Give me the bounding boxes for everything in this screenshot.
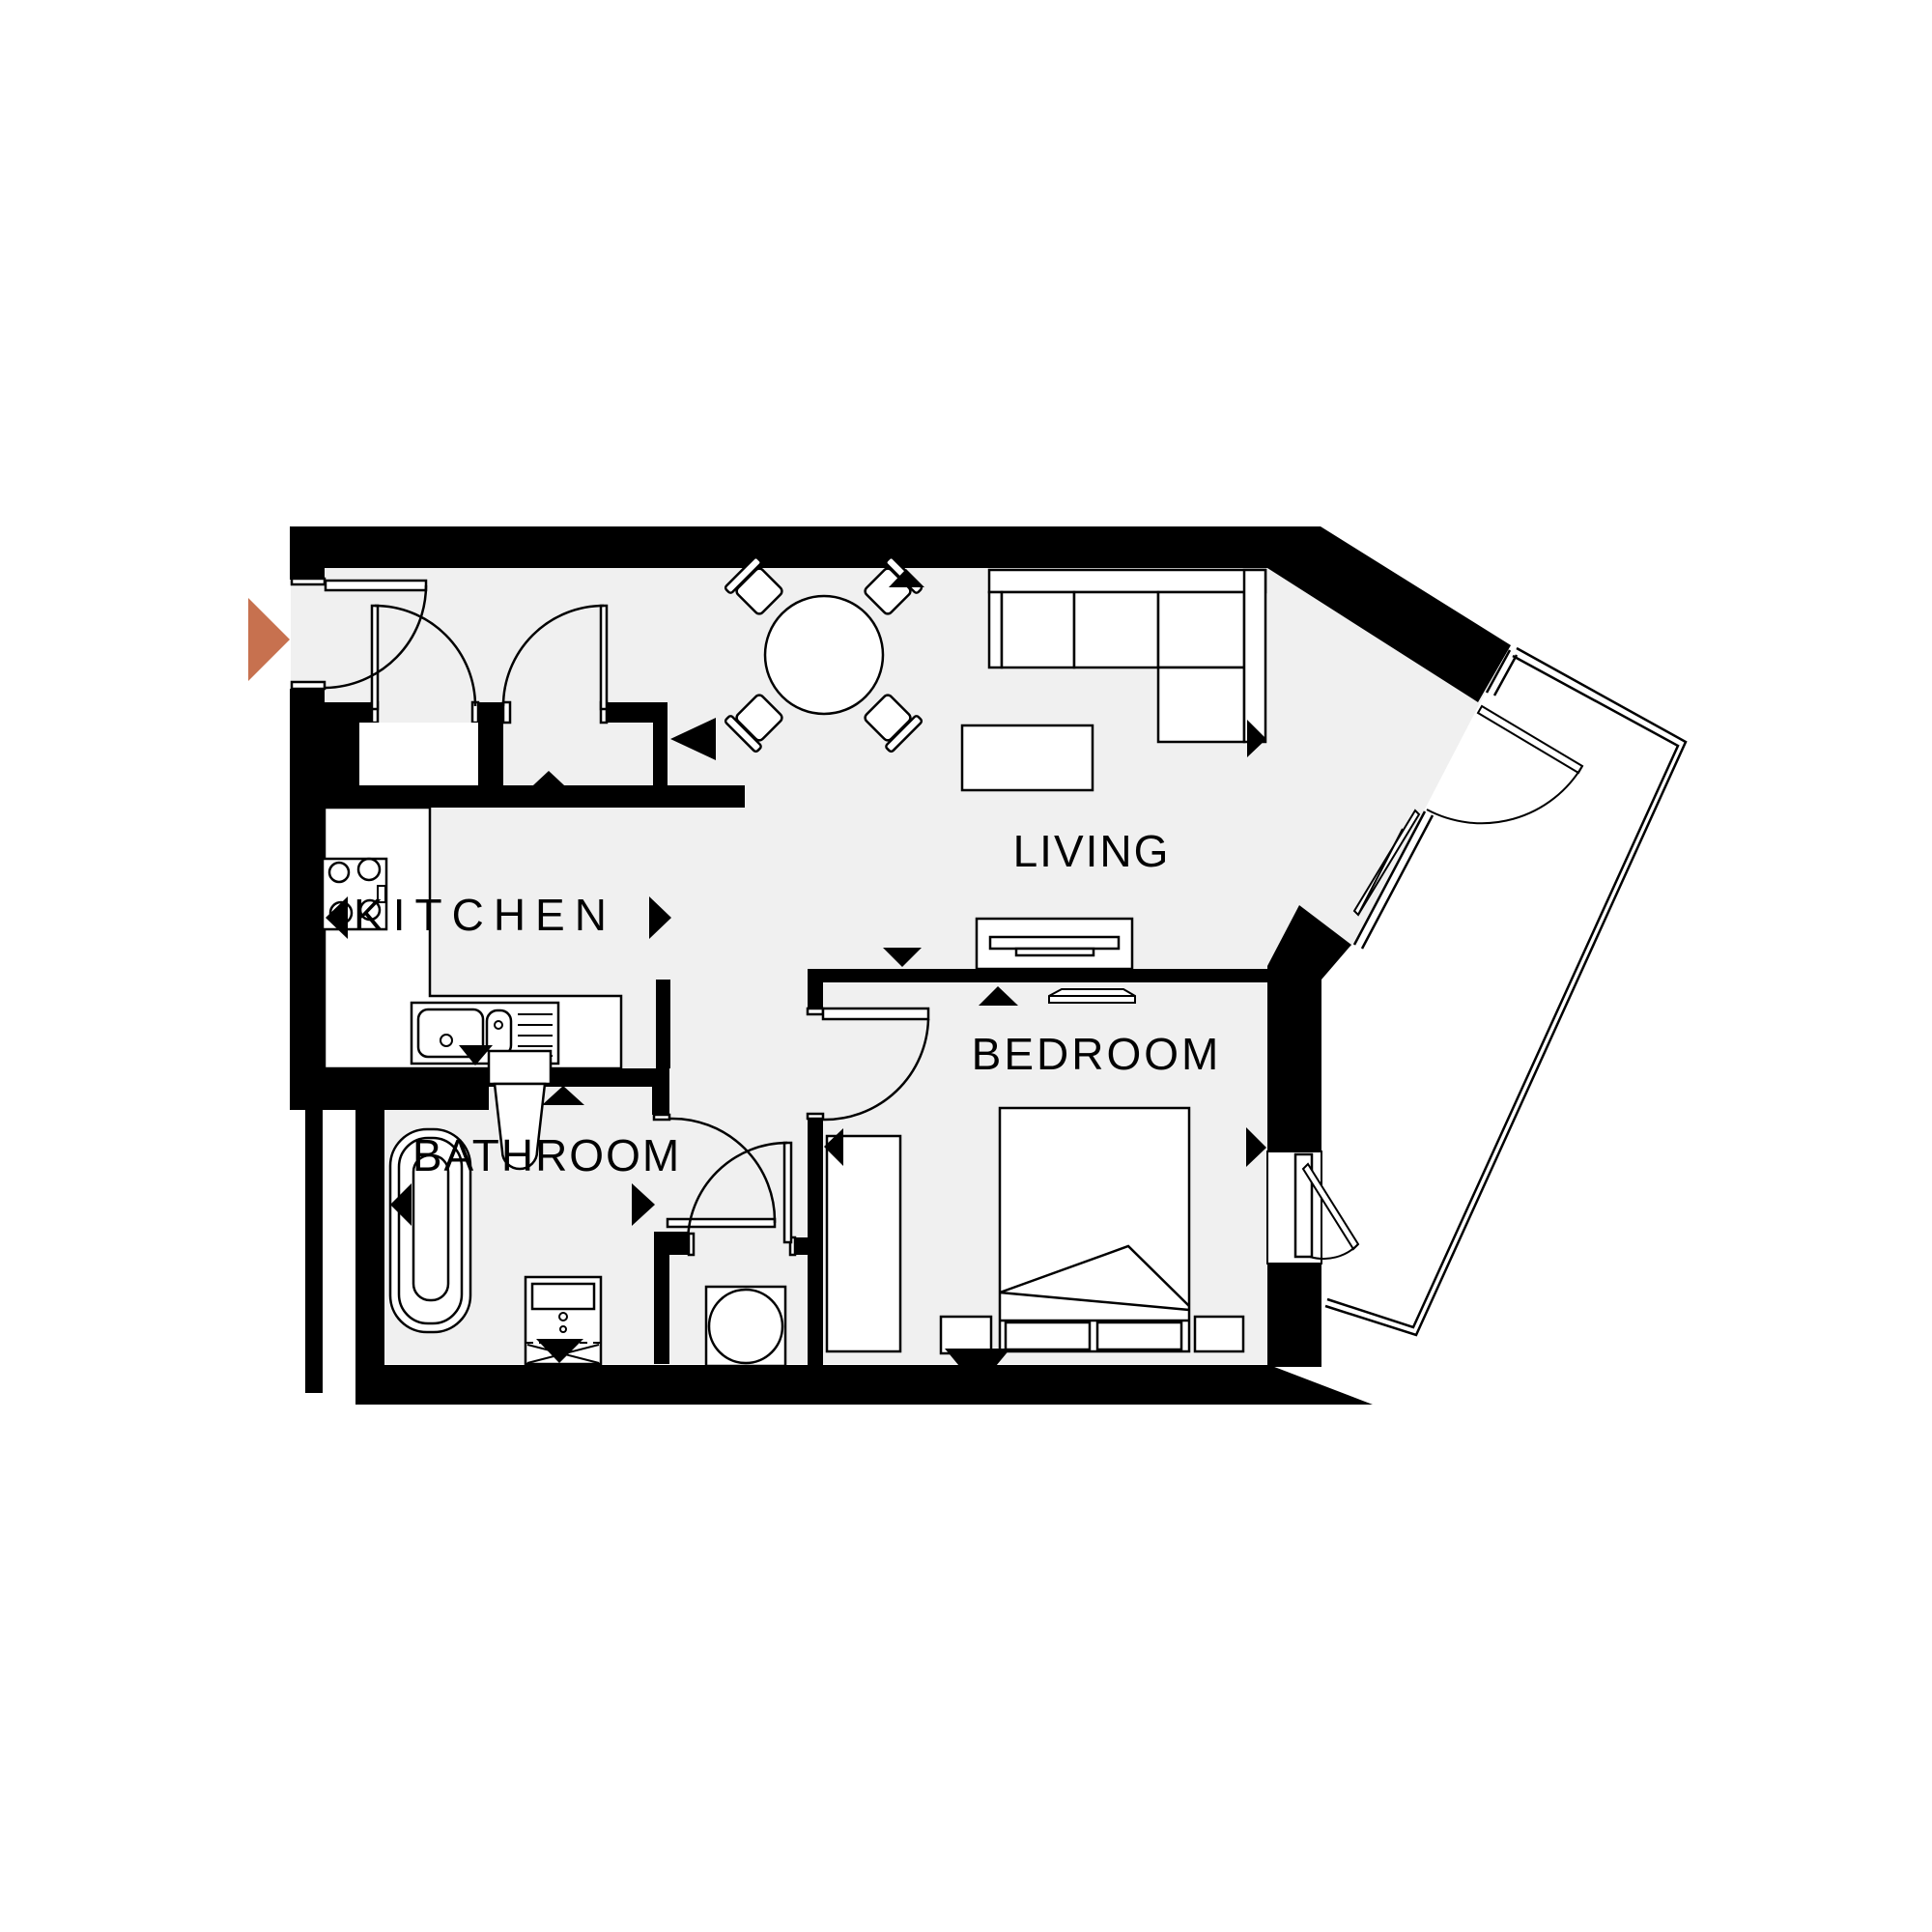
- svg-text:BATHROOM: BATHROOM: [412, 1130, 681, 1180]
- svg-text:LIVING: LIVING: [1013, 826, 1171, 876]
- svg-text:BEDROOM: BEDROOM: [972, 1029, 1222, 1079]
- svg-text:KITCHEN: KITCHEN: [354, 890, 616, 940]
